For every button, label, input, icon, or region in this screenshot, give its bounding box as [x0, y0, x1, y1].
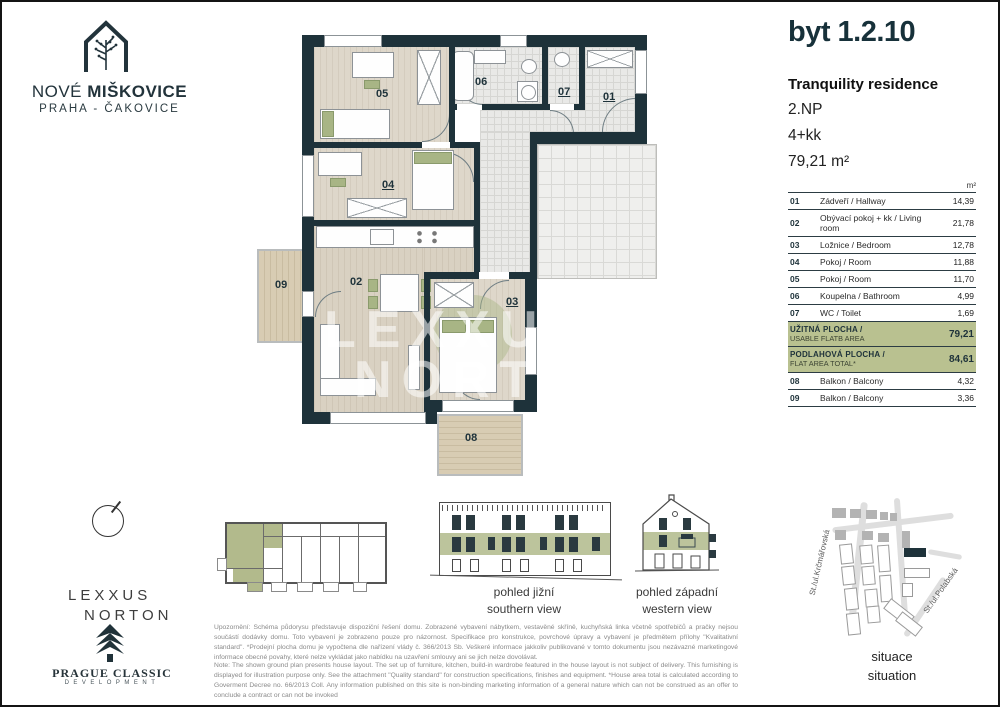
- toilet: [521, 59, 537, 74]
- unit-floor: 2.NP: [788, 101, 976, 119]
- caption-en: situation: [817, 667, 967, 686]
- room-area: 4,99: [940, 291, 976, 301]
- unit-panel: byt 1.2.10 Tranquility residence 2.NP 4+…: [788, 16, 976, 407]
- window: [324, 35, 382, 47]
- wall: [430, 272, 479, 279]
- table-row: 07WC / Toilet1,69: [788, 304, 976, 321]
- room-code: 07: [788, 308, 820, 318]
- wall: [302, 35, 314, 155]
- wall: [449, 47, 455, 142]
- wall: [424, 272, 430, 412]
- table-row: 03Ložnice / Bedroom12,78: [788, 236, 976, 253]
- balcony-09: [257, 249, 308, 343]
- room-name: Pokoj / Room: [820, 257, 940, 267]
- room-name: Ložnice / Bedroom: [820, 240, 940, 250]
- pillow: [322, 111, 334, 137]
- highlighted-unit: [233, 568, 263, 582]
- summary-value: 84,61: [934, 354, 976, 365]
- lexxus-line1: LEXXUS: [68, 586, 172, 606]
- chair: [368, 296, 378, 309]
- room-label-01: 01: [603, 91, 615, 103]
- wall: [482, 104, 550, 110]
- room-name: Balkon / Balcony: [820, 376, 940, 386]
- washing-machine: [517, 81, 538, 102]
- room-name: Obývací pokoj + kk / Living room: [820, 213, 940, 233]
- unit-area: 79,21 m²: [788, 153, 976, 171]
- table-row: 04Pokoj / Room11,88: [788, 253, 976, 270]
- table-row: 02Obývací pokoj + kk / Living room21,78: [788, 209, 976, 236]
- compass-icon: [92, 505, 124, 537]
- south-view-caption: pohled jižní southern view: [449, 584, 599, 619]
- wardrobe: [417, 50, 441, 105]
- wall: [535, 132, 647, 144]
- wall: [302, 217, 314, 291]
- room-code: 05: [788, 274, 820, 284]
- room-code: 02: [788, 218, 820, 228]
- caption-cz: pohled jižní: [449, 584, 599, 601]
- wall: [449, 104, 457, 110]
- pillow: [442, 320, 466, 333]
- prague-classic-icon: [94, 624, 126, 664]
- room-name: Pokoj / Room: [820, 274, 940, 284]
- bathtub: [452, 51, 474, 101]
- wall: [302, 317, 314, 424]
- pillow: [414, 152, 452, 164]
- room-area: 3,36: [940, 393, 976, 403]
- disclaimer-cz: Upozornění: Schéma půdorysu představuje …: [214, 623, 738, 663]
- window: [525, 327, 537, 375]
- summary-value: 79,21: [934, 329, 976, 340]
- room-code: 09: [788, 393, 820, 403]
- project-name: Tranquility residence: [788, 76, 976, 93]
- lexxus-norton-logo: LEXXUS NORTON: [68, 586, 172, 627]
- room-name: WC / Toilet: [820, 308, 940, 318]
- table-row: 05Pokoj / Room11,70: [788, 270, 976, 287]
- room-code: 01: [788, 196, 820, 206]
- street-label-left: St./ul.Krčmářovská: [808, 529, 832, 596]
- highlighted-unit: [227, 548, 263, 568]
- room-label-04: 04: [382, 179, 394, 191]
- parapet: [442, 505, 606, 511]
- room-area: 4,32: [940, 376, 976, 386]
- room-code: 08: [788, 376, 820, 386]
- room-area: 11,88: [940, 257, 976, 267]
- table-row: 09Balkon / Balcony3,36: [788, 389, 976, 406]
- wall: [474, 148, 480, 272]
- room-code: 04: [788, 257, 820, 267]
- wall: [314, 142, 422, 148]
- terrace-area: [537, 144, 657, 279]
- room-name: Zádveří / Hallway: [820, 196, 940, 206]
- caption-en: southern view: [449, 601, 599, 618]
- wall: [450, 142, 480, 148]
- table-row: 08Balkon / Balcony4,32: [788, 372, 976, 389]
- table-row: 06Koupelna / Bathroom4,99: [788, 287, 976, 304]
- situation-map: St./ul.Krčmářovská St./ul.Polabská: [810, 494, 985, 644]
- wardrobe: [434, 282, 474, 308]
- caption-cz: pohled západní: [602, 584, 752, 601]
- room-area: 1,69: [940, 308, 976, 318]
- room-label-03: 03: [506, 296, 518, 308]
- summary-label-en: USABLE FLATB AREA: [790, 335, 934, 344]
- room-code: 06: [788, 291, 820, 301]
- room-label-09: 09: [275, 279, 287, 291]
- room-label-05: 05: [376, 88, 388, 100]
- wall: [314, 220, 474, 226]
- wall: [574, 104, 585, 110]
- room-area: 14,39: [940, 196, 976, 206]
- unit-title: byt 1.2.10: [788, 16, 976, 49]
- prague-classic-name: PRAGUE CLASSIC: [22, 666, 202, 681]
- wall: [579, 47, 585, 104]
- west-view-caption: pohled západní western view: [602, 584, 752, 619]
- room-code: 03: [788, 240, 820, 250]
- kitchen-counter: [316, 226, 474, 248]
- wall: [530, 132, 537, 272]
- south-elevation: [439, 502, 611, 576]
- balcony-door-08: [442, 400, 514, 412]
- wardrobe: [587, 50, 633, 68]
- toilet: [554, 52, 570, 67]
- room-label-08: 08: [465, 432, 477, 444]
- tv-bench: [408, 345, 420, 390]
- room-label-06: 06: [475, 76, 487, 88]
- wall: [509, 272, 530, 279]
- hob: [412, 228, 442, 246]
- wall: [542, 47, 548, 104]
- sink: [474, 50, 506, 64]
- unit-layout: 4+kk: [788, 127, 976, 145]
- window: [330, 412, 426, 424]
- pillow: [470, 320, 494, 333]
- room-label-02: 02: [350, 276, 362, 288]
- dining-table: [380, 274, 419, 312]
- summary-row-total: PODLAHOVÁ PLOCHA /FLAT AREA TOTAL* 84,61: [788, 346, 976, 371]
- table-row: 01Zádveří / Hallway14,39: [788, 192, 976, 209]
- sofa: [320, 378, 376, 396]
- window: [635, 50, 647, 94]
- rooms-table: 01Zádveří / Hallway14,39 02Obývací pokoj…: [788, 192, 976, 407]
- desk: [318, 152, 362, 176]
- caption-cz: situace: [817, 648, 967, 667]
- kitchen-sink: [370, 229, 394, 245]
- situation-caption: situace situation: [817, 648, 967, 686]
- floorplan-sheet: NOVÉ MIŠKOVICE PRAHA - ČAKOVICE: [0, 0, 1000, 707]
- disclaimer-en: Note: The shown ground plan presents hou…: [214, 661, 738, 701]
- building-floor-overview: [225, 522, 387, 584]
- room-area: 12,78: [940, 240, 976, 250]
- summary-row-usable: UŽITNÁ PLOCHA /USABLE FLATB AREA 79,21: [788, 321, 976, 346]
- summary-label-en: FLAT AREA TOTAL*: [790, 360, 934, 369]
- floor-plan: 05 06 07 01 04 02 03 09 08 LEXXUS NORTON: [2, 2, 762, 482]
- room-name: Koupelna / Bathroom: [820, 291, 940, 301]
- wardrobe: [347, 198, 407, 218]
- caption-en: western view: [602, 601, 752, 618]
- room-label-07: 07: [558, 86, 570, 98]
- west-elevation: [635, 492, 719, 580]
- desk: [352, 52, 394, 78]
- window: [500, 35, 527, 47]
- hallway-floor-v: [480, 132, 530, 272]
- balcony-door-09: [302, 291, 314, 317]
- window: [302, 155, 314, 217]
- chair: [368, 279, 378, 292]
- room-name: Balkon / Balcony: [820, 393, 940, 403]
- prague-classic-sub: DEVELOPMENT: [22, 680, 202, 686]
- balcony-08: [437, 414, 523, 476]
- project-building: [904, 548, 926, 557]
- area-unit-header: m²: [788, 181, 976, 190]
- room-area: 21,78: [940, 218, 976, 228]
- chair: [330, 178, 346, 187]
- room-area: 11,70: [940, 274, 976, 284]
